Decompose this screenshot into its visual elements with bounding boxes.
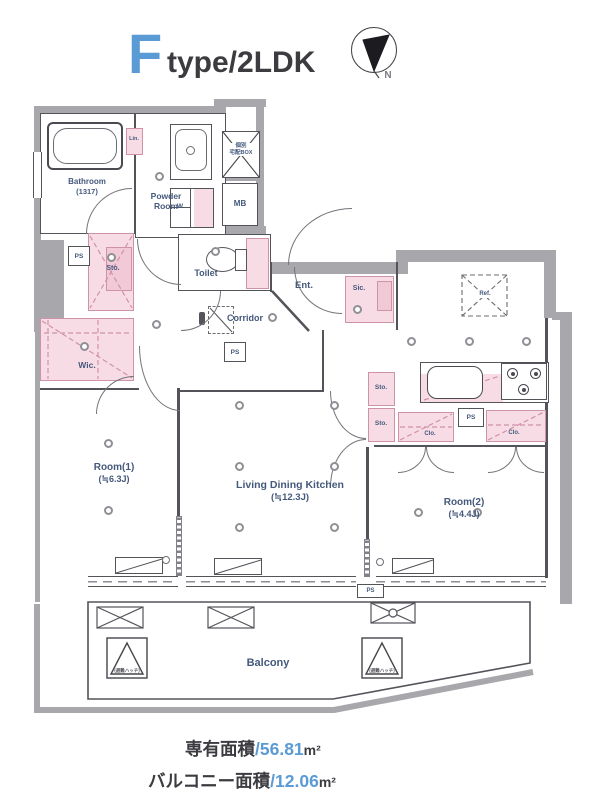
pipe-space: PS	[224, 342, 246, 362]
shoe-closet-sub	[377, 281, 392, 311]
label-washer: W	[177, 203, 183, 211]
ceiling-light	[268, 313, 277, 322]
room-label-ldk: Living Dining Kitchen (≒12.3J)	[236, 479, 344, 503]
kitchen-sink	[427, 366, 483, 399]
room-label-room2: Room(2) (≒4.4J)	[444, 497, 485, 520]
ceiling-light	[414, 508, 423, 517]
ceiling-light	[235, 523, 244, 532]
label-closet-left: Clo.	[424, 431, 435, 438]
ceiling-light	[211, 247, 220, 256]
sliding-panel	[115, 557, 163, 574]
ceiling-light	[330, 523, 339, 532]
stove-burner	[530, 368, 541, 379]
stove-burner	[507, 368, 518, 379]
wic-door-arc	[96, 376, 134, 414]
label-corridor: Corridor	[227, 313, 263, 324]
wall	[220, 226, 266, 234]
powder-room-door-arc	[137, 239, 181, 285]
pipe-space: PS	[68, 246, 90, 266]
washer-pink	[194, 189, 213, 227]
delivery-line-2: 宅配BOX	[230, 150, 253, 157]
ceiling-light	[353, 305, 362, 314]
wall	[34, 106, 226, 113]
ceiling-light	[155, 172, 164, 181]
room-label-bathroom: Bathroom (1317)	[68, 177, 106, 196]
balcony-area-label: バルコニー面積	[148, 771, 270, 791]
delivery-line-1: 個別	[230, 143, 253, 150]
bathroom-window	[33, 152, 42, 198]
closet-door-leaf	[516, 447, 544, 473]
compass-north-label: N	[384, 70, 391, 82]
sliding-panel	[214, 558, 262, 575]
ceiling-light	[80, 342, 89, 351]
closet-right	[486, 410, 546, 442]
ceiling-light	[407, 337, 416, 346]
powder-name-1: Powder	[151, 191, 182, 201]
ceiling-light	[152, 320, 161, 329]
room2-size: (≒4.4J)	[444, 509, 485, 520]
ldk-name: Living Dining Kitchen	[236, 479, 344, 492]
ceiling-light	[465, 337, 474, 346]
wall	[560, 312, 572, 604]
ceiling-light	[522, 337, 531, 346]
wall-line	[396, 262, 398, 330]
plan-type-letter: F	[128, 26, 162, 82]
sliding-panel	[392, 558, 434, 574]
closet-door-leaf	[398, 447, 426, 473]
wall-line	[178, 390, 324, 392]
wall-line	[545, 318, 548, 578]
label-storage-ul: Sto.	[106, 265, 119, 273]
balcony-area-unit: m²	[319, 774, 336, 790]
label-delivery-box: 個別 宅配BOX	[229, 143, 254, 156]
wall-line	[322, 330, 324, 390]
room1-name: Room(1)	[94, 462, 135, 474]
label-linen: Lin.	[129, 136, 139, 143]
label-wic: Wic.	[78, 360, 95, 370]
wall-line	[270, 262, 272, 292]
label-hatch-right: (避難ハッチ)	[369, 668, 395, 673]
label-kitchen-storage-1: Sto.	[375, 384, 387, 392]
room-label-room1: Room(1) (≒6.3J)	[94, 462, 135, 485]
room1-size: (≒6.3J)	[94, 474, 135, 485]
label-refrigerator: Ref.	[478, 291, 491, 298]
ceiling-light	[235, 462, 244, 471]
vanity-drain	[186, 146, 195, 155]
wall-line	[366, 447, 369, 539]
pipe-space: PS	[357, 584, 384, 598]
bathroom-name: Bathroom	[68, 177, 106, 187]
balcony-vents	[97, 603, 415, 628]
exclusive-area-row: 専有面積/56.81m²	[185, 736, 321, 761]
ceiling-light	[107, 253, 116, 262]
toilet-tank	[235, 249, 247, 271]
label-shoe-closet: Sic.	[353, 285, 365, 293]
balcony-area-row: バルコニー面積/12.06m²	[148, 768, 336, 793]
balcony-area-value: /12.06	[270, 771, 319, 791]
ceiling-light	[330, 462, 339, 471]
ldk-size: (≒12.3J)	[236, 492, 344, 503]
toilet-cabinet	[246, 238, 269, 289]
entrance-door-arc	[288, 208, 352, 265]
window-ldk	[186, 576, 356, 587]
ceiling-light	[235, 401, 244, 410]
wall	[408, 250, 548, 262]
sliding-door	[364, 539, 370, 577]
exclusive-area-label: 専有面積	[185, 739, 255, 759]
window-room2	[376, 576, 546, 587]
corridor-angle-wall	[272, 291, 309, 331]
ceiling-light	[104, 506, 113, 515]
bathtub-inner	[53, 128, 117, 164]
door-roller	[376, 558, 384, 566]
ceiling-light	[330, 401, 339, 410]
door-roller	[162, 556, 170, 564]
wall	[544, 250, 556, 318]
ldk-door-arc-upper	[330, 391, 366, 439]
closet-door-leaf	[488, 447, 516, 473]
window-room1	[88, 576, 178, 587]
closet-door-leaf	[426, 447, 454, 473]
stove-burner	[518, 384, 529, 395]
pipe-space: PS	[458, 408, 484, 427]
room2-name: Room(2)	[444, 497, 485, 509]
compass-circle	[351, 27, 397, 73]
room1-door-arc	[139, 346, 180, 411]
exclusive-area-unit: m²	[304, 742, 321, 758]
label-entrance: Ent.	[295, 280, 313, 291]
washer-divider	[190, 188, 191, 228]
sliding-door	[176, 516, 182, 576]
label-closet-right: Clo.	[508, 430, 519, 437]
plan-type-text: type/2LDK	[167, 48, 315, 78]
exclusive-area-value: /56.81	[255, 739, 304, 759]
bathroom-size: (1317)	[68, 187, 106, 196]
label-meter-box: MB	[234, 199, 246, 209]
label-kitchen-storage-2: Sto.	[375, 420, 387, 428]
floor-plan-page: F type/2LDK N	[0, 0, 601, 800]
label-toilet: Toilet	[194, 268, 217, 279]
label-hatch-left: (避難ハッチ)	[114, 668, 140, 673]
balcony-outline	[88, 602, 530, 699]
ceiling-light	[104, 439, 113, 448]
label-balcony: Balcony	[247, 657, 290, 670]
